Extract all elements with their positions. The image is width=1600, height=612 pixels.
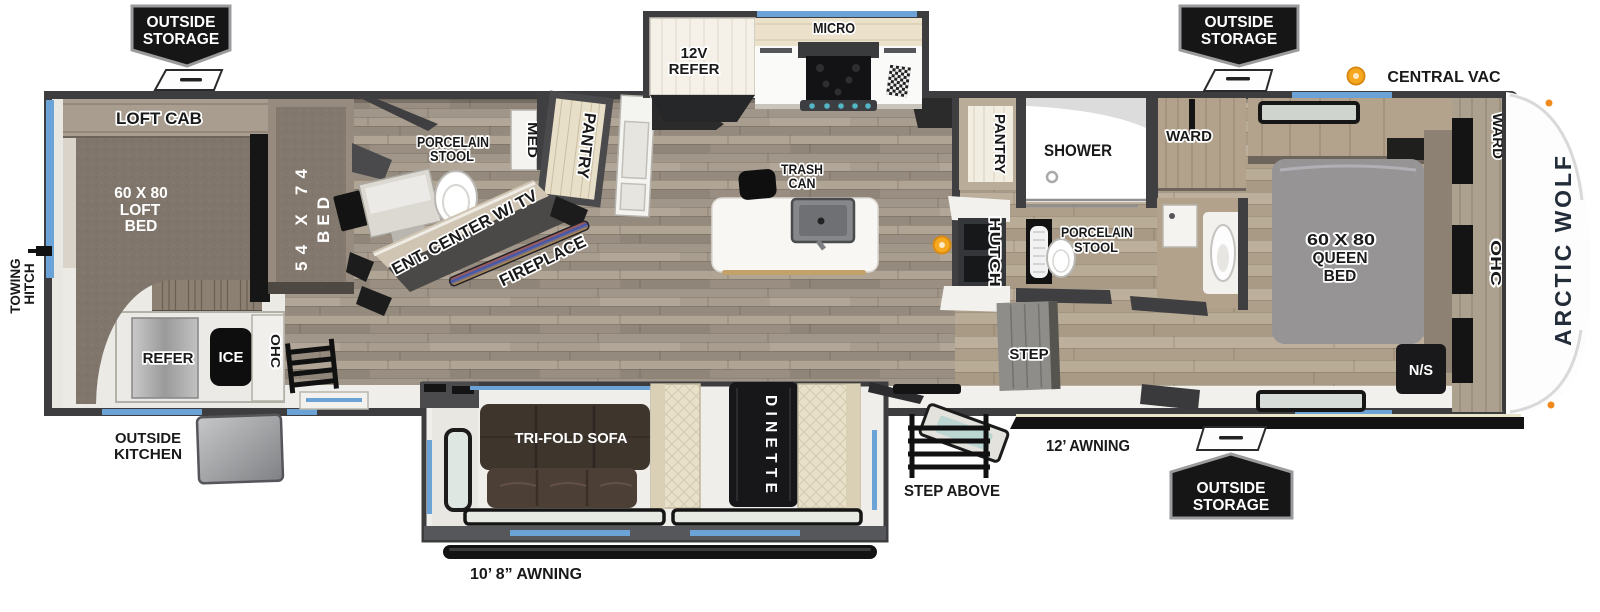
svg-text:CAN: CAN	[789, 175, 816, 191]
svg-text:STEP ABOVE: STEP ABOVE	[904, 483, 1000, 500]
svg-text:60 X 80: 60 X 80	[1307, 232, 1375, 249]
svg-text:HITCH: HITCH	[22, 263, 37, 304]
svg-text:ICE: ICE	[218, 349, 243, 366]
svg-text:HUTCH: HUTCH	[986, 217, 1003, 287]
svg-text:SHOWER: SHOWER	[1044, 141, 1112, 160]
svg-text:REFER: REFER	[143, 350, 194, 367]
svg-text:STORAGE: STORAGE	[143, 31, 219, 48]
svg-text:BED: BED	[314, 197, 333, 243]
svg-text:N/S: N/S	[1409, 363, 1434, 379]
svg-text:STEP: STEP	[1009, 346, 1048, 363]
svg-text:OHC: OHC	[268, 334, 283, 369]
svg-text:OUTSIDE: OUTSIDE	[115, 431, 181, 447]
svg-text:BED: BED	[125, 218, 158, 235]
svg-text:WARD: WARD	[1166, 128, 1212, 145]
svg-text:BED: BED	[1324, 268, 1357, 285]
svg-text:OUTSIDE: OUTSIDE	[147, 14, 216, 31]
svg-text:OUTSIDE: OUTSIDE	[1205, 14, 1274, 31]
svg-text:60 X 80: 60 X 80	[114, 185, 167, 202]
svg-text:STOOL: STOOL	[430, 149, 474, 165]
svg-text:MICRO: MICRO	[813, 20, 855, 37]
svg-text:KITCHEN: KITCHEN	[114, 447, 182, 463]
svg-text:12’ AWNING: 12’ AWNING	[1046, 438, 1130, 455]
svg-text:TRI-FOLD SOFA: TRI-FOLD SOFA	[515, 430, 628, 447]
svg-text:PORCELAIN: PORCELAIN	[1061, 224, 1133, 240]
svg-text:10’ 8” AWNING: 10’ 8” AWNING	[470, 566, 582, 583]
svg-text:OHC: OHC	[1487, 240, 1504, 286]
svg-text:12V: 12V	[681, 45, 708, 62]
svg-text:OUTSIDE: OUTSIDE	[1197, 480, 1266, 497]
svg-text:STOOL: STOOL	[1074, 239, 1118, 255]
svg-text:REFER: REFER	[669, 61, 720, 78]
svg-text:LOFT: LOFT	[120, 202, 161, 219]
svg-text:LOFT CAB: LOFT CAB	[116, 109, 202, 128]
svg-text:CENTRAL VAC: CENTRAL VAC	[1387, 69, 1501, 86]
svg-text:STORAGE: STORAGE	[1193, 497, 1269, 514]
svg-text:ARCTIC WOLF: ARCTIC WOLF	[1550, 156, 1576, 346]
svg-text:TOWING: TOWING	[8, 258, 23, 313]
svg-text:STORAGE: STORAGE	[1201, 31, 1277, 48]
svg-text:PANTRY: PANTRY	[991, 114, 1008, 174]
svg-text:QUEEN: QUEEN	[1312, 250, 1367, 267]
